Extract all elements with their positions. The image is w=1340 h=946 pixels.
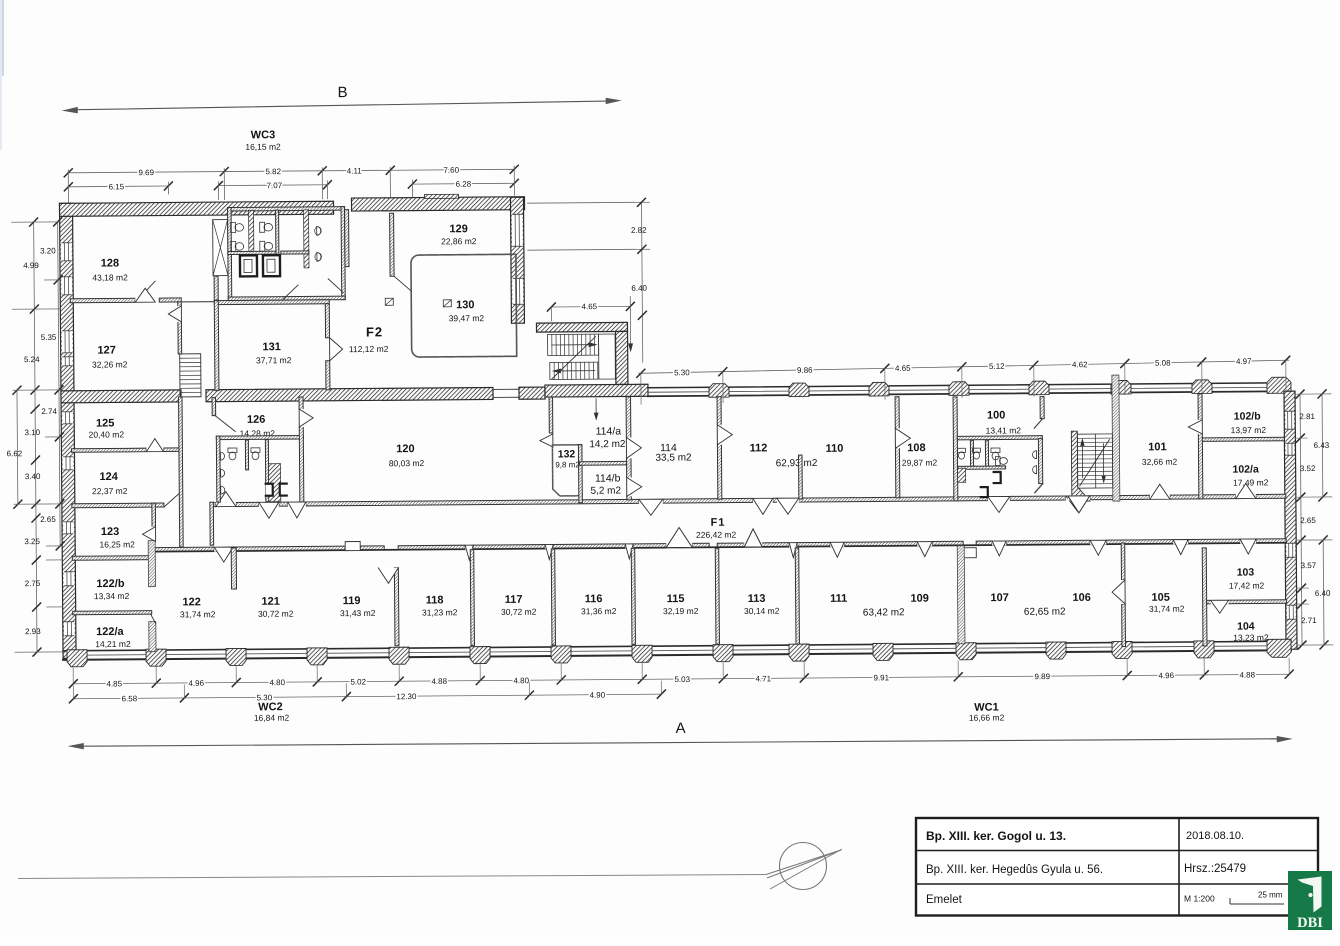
svg-text:107: 107 [990, 592, 1008, 604]
svg-text:102/a: 102/a [1232, 463, 1259, 475]
svg-text:3.57: 3.57 [1301, 561, 1317, 570]
svg-text:3.25: 3.25 [24, 537, 40, 546]
svg-text:80,03 m2: 80,03 m2 [389, 458, 425, 468]
svg-text:112,12 m2: 112,12 m2 [349, 344, 389, 354]
svg-text:DBI: DBI [1297, 915, 1323, 931]
svg-text:9.86: 9.86 [797, 366, 813, 375]
svg-text:6.62: 6.62 [7, 449, 23, 458]
svg-text:22,37 m2: 22,37 m2 [92, 486, 128, 496]
svg-text:16,25 m2: 16,25 m2 [99, 539, 135, 549]
svg-text:113: 113 [748, 593, 766, 605]
svg-text:2.65: 2.65 [40, 515, 56, 524]
svg-text:130: 130 [456, 299, 474, 311]
svg-text:102/b: 102/b [1234, 410, 1261, 422]
svg-text:122: 122 [182, 596, 200, 608]
svg-text:2.65: 2.65 [1300, 516, 1316, 525]
svg-text:31,74 m2: 31,74 m2 [180, 609, 216, 619]
svg-text:62,93 m2: 62,93 m2 [776, 458, 818, 469]
svg-text:33,5 m2: 33,5 m2 [655, 452, 692, 463]
svg-text:9.91: 9.91 [873, 673, 889, 682]
svg-text:120: 120 [396, 443, 414, 455]
svg-text:31,23 m2: 31,23 m2 [422, 607, 458, 617]
svg-text:112: 112 [750, 442, 768, 454]
svg-text:105: 105 [1151, 592, 1169, 604]
svg-text:13,41 m2: 13,41 m2 [986, 425, 1022, 435]
svg-text:6.40: 6.40 [1315, 589, 1331, 598]
svg-text:2.71: 2.71 [1301, 616, 1317, 625]
svg-text:63,42 m2: 63,42 m2 [863, 607, 905, 618]
svg-text:4.90: 4.90 [590, 691, 606, 700]
svg-text:117: 117 [505, 594, 523, 606]
svg-text:Bp. XIII. ker. Gogol u. 13.: Bp. XIII. ker. Gogol u. 13. [926, 829, 1066, 843]
svg-text:129: 129 [449, 223, 467, 235]
svg-text:2.82: 2.82 [631, 226, 647, 235]
svg-text:13,97 m2: 13,97 m2 [1231, 425, 1267, 435]
svg-text:6.15: 6.15 [109, 182, 125, 191]
svg-text:17,42 m2: 17,42 m2 [1229, 580, 1265, 590]
svg-text:6.40: 6.40 [631, 284, 647, 293]
svg-text:32,66 m2: 32,66 m2 [1142, 457, 1178, 467]
svg-text:17,49 m2: 17,49 m2 [1233, 477, 1269, 487]
svg-text:110: 110 [826, 443, 844, 455]
svg-text:100: 100 [987, 409, 1005, 421]
svg-text:30,14 m2: 30,14 m2 [744, 606, 780, 616]
svg-text:13,23 m2: 13,23 m2 [1233, 632, 1269, 642]
svg-text:101: 101 [1148, 441, 1166, 453]
svg-text:103: 103 [1237, 566, 1255, 578]
svg-text:3.40: 3.40 [25, 472, 41, 481]
svg-text:M 1:200: M 1:200 [1184, 894, 1215, 904]
svg-text:31,43 m2: 31,43 m2 [340, 608, 376, 618]
svg-text:6.43: 6.43 [1314, 441, 1330, 450]
svg-text:3.20: 3.20 [40, 246, 56, 255]
svg-text:116: 116 [585, 593, 603, 605]
svg-text:31,74 m2: 31,74 m2 [1149, 604, 1185, 614]
svg-text:2.81: 2.81 [1299, 412, 1315, 421]
svg-text:13,34 m2: 13,34 m2 [94, 591, 130, 601]
svg-text:126: 126 [247, 414, 265, 426]
svg-text:2018.08.10.: 2018.08.10. [1186, 830, 1244, 842]
svg-text:Emelet: Emelet [926, 894, 963, 906]
svg-text:37,71 m2: 37,71 m2 [256, 355, 292, 365]
svg-text:4.80: 4.80 [269, 678, 285, 687]
svg-text:14,21 m2: 14,21 m2 [95, 639, 131, 649]
svg-text:WC2: WC2 [258, 701, 283, 713]
svg-text:B: B [338, 84, 348, 101]
svg-text:5.30: 5.30 [674, 368, 690, 377]
svg-text:16,15 m2: 16,15 m2 [245, 142, 281, 152]
svg-text:125: 125 [96, 417, 114, 429]
svg-text:9.69: 9.69 [138, 168, 154, 177]
svg-text:114/b: 114/b [595, 472, 621, 484]
svg-text:127: 127 [97, 344, 115, 356]
svg-text:4.85: 4.85 [106, 679, 122, 688]
svg-text:5.82: 5.82 [265, 167, 281, 176]
svg-text:5.02: 5.02 [350, 677, 366, 686]
svg-text:F1: F1 [711, 517, 726, 529]
svg-text:124: 124 [99, 471, 118, 483]
svg-text:5.03: 5.03 [674, 675, 690, 684]
svg-text:4.99: 4.99 [23, 261, 39, 270]
svg-text:9,8 m2: 9,8 m2 [555, 460, 580, 469]
svg-text:30,72 m2: 30,72 m2 [258, 609, 294, 619]
svg-text:WC3: WC3 [251, 129, 276, 141]
svg-text:119: 119 [343, 595, 361, 607]
svg-text:12.30: 12.30 [396, 692, 417, 701]
svg-text:31,36 m2: 31,36 m2 [581, 606, 617, 616]
svg-text:2.74: 2.74 [41, 407, 57, 416]
svg-text:123: 123 [101, 526, 119, 538]
svg-text:F2: F2 [366, 324, 383, 339]
svg-text:3.10: 3.10 [24, 428, 40, 437]
svg-text:5.35: 5.35 [41, 333, 57, 342]
svg-text:108: 108 [907, 442, 925, 454]
svg-text:5.08: 5.08 [1155, 359, 1171, 368]
svg-text:118: 118 [426, 594, 444, 606]
svg-text:122/a: 122/a [96, 626, 125, 638]
svg-text:39,47 m2: 39,47 m2 [449, 313, 485, 323]
svg-text:30,72 m2: 30,72 m2 [501, 607, 537, 617]
svg-text:104: 104 [1237, 620, 1255, 632]
svg-text:4.11: 4.11 [347, 166, 363, 175]
svg-text:128: 128 [101, 257, 119, 269]
svg-text:115: 115 [667, 593, 685, 605]
svg-text:4.65: 4.65 [581, 302, 597, 311]
svg-text:20,40 m2: 20,40 m2 [89, 429, 125, 439]
svg-text:7.07: 7.07 [267, 181, 283, 190]
svg-text:4.96: 4.96 [1158, 671, 1174, 680]
svg-text:29,87 m2: 29,87 m2 [902, 457, 938, 467]
svg-text:3.52: 3.52 [1300, 464, 1316, 473]
svg-text:5,2 m2: 5,2 m2 [590, 485, 621, 496]
svg-text:62,65 m2: 62,65 m2 [1024, 606, 1066, 617]
svg-text:5.12: 5.12 [989, 362, 1005, 371]
svg-text:106: 106 [1072, 592, 1090, 604]
svg-text:4.88: 4.88 [1239, 670, 1255, 679]
svg-text:32,26 m2: 32,26 m2 [92, 359, 128, 369]
svg-text:43,18 m2: 43,18 m2 [92, 272, 128, 282]
svg-text:4.62: 4.62 [1072, 360, 1088, 369]
svg-text:4.97: 4.97 [1236, 357, 1252, 366]
svg-text:14,2 m2: 14,2 m2 [589, 439, 626, 450]
svg-text:32,19 m2: 32,19 m2 [663, 606, 699, 616]
svg-text:114/a: 114/a [596, 425, 622, 437]
svg-text:Bp. XIII. ker. Hegedûs Gyula u: Bp. XIII. ker. Hegedûs Gyula u. 56. [926, 864, 1103, 876]
svg-text:16,66 m2: 16,66 m2 [969, 712, 1005, 722]
svg-text:122/b: 122/b [96, 578, 125, 590]
svg-text:2.75: 2.75 [25, 579, 41, 588]
svg-text:6.28: 6.28 [456, 180, 472, 189]
svg-text:109: 109 [910, 593, 928, 605]
svg-text:25 mm: 25 mm [1258, 891, 1283, 900]
svg-text:16,84 m2: 16,84 m2 [254, 713, 290, 723]
svg-text:121: 121 [261, 596, 279, 608]
svg-text:226,42 m2: 226,42 m2 [696, 530, 737, 540]
svg-text:4.80: 4.80 [513, 676, 529, 685]
svg-text:111: 111 [830, 593, 847, 605]
svg-text:7.60: 7.60 [443, 166, 459, 175]
svg-text:9.89: 9.89 [1034, 672, 1050, 681]
svg-text:22,86 m2: 22,86 m2 [441, 236, 477, 246]
svg-text:A: A [676, 720, 686, 737]
svg-text:131: 131 [262, 341, 280, 353]
svg-text:Hrsz.:25479: Hrsz.:25479 [1184, 863, 1246, 875]
svg-text:4.65: 4.65 [895, 364, 911, 373]
svg-text:132: 132 [558, 448, 576, 460]
svg-text:6.58: 6.58 [122, 694, 138, 703]
svg-text:5.24: 5.24 [24, 355, 40, 364]
svg-text:2.93: 2.93 [25, 627, 41, 636]
svg-text:4.71: 4.71 [755, 674, 771, 683]
svg-text:4.88: 4.88 [431, 677, 447, 686]
svg-text:4.96: 4.96 [188, 679, 204, 688]
